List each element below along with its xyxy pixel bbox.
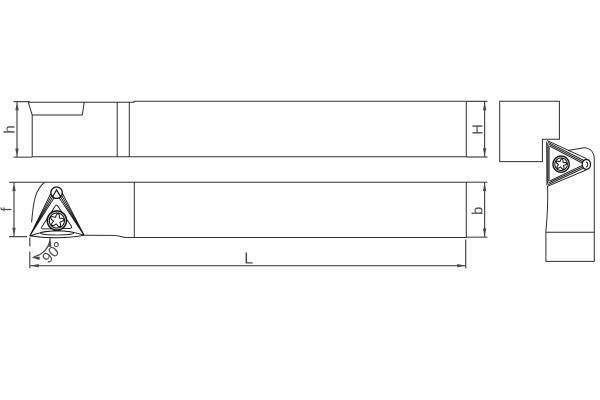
svg-text:f: f xyxy=(0,206,16,211)
svg-text:h: h xyxy=(1,125,18,133)
svg-text:90: 90 xyxy=(39,243,63,267)
svg-text:L: L xyxy=(244,251,253,268)
svg-text:b: b xyxy=(470,207,486,215)
svg-text:H: H xyxy=(470,124,486,134)
